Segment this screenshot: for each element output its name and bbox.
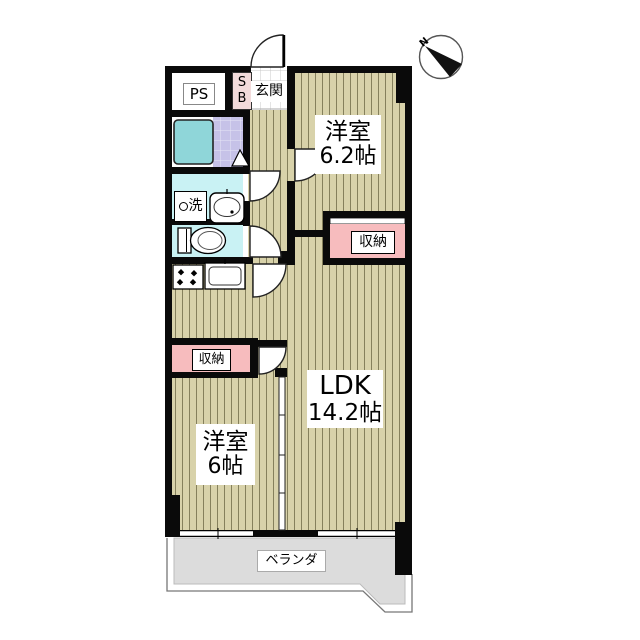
compass-north-icon: N bbox=[418, 36, 463, 79]
washbasin-icon bbox=[210, 189, 244, 223]
kitchen-sink-icon bbox=[205, 259, 245, 289]
floor-plan-drawing: N bbox=[0, 0, 640, 640]
storage-left-label: 収納 bbox=[192, 349, 231, 371]
toilet-icon bbox=[178, 228, 226, 254]
partition-icon bbox=[279, 377, 285, 530]
stove-icon bbox=[173, 265, 203, 289]
entrance-label: 玄関 bbox=[251, 81, 287, 102]
western-room-2-label: 洋室 6帖 bbox=[196, 424, 255, 485]
pipe-space-label: PS bbox=[183, 83, 215, 105]
washer-circle-icon bbox=[179, 202, 188, 211]
shoe-box-label: S B bbox=[232, 72, 252, 110]
storage-right-label: 収納 bbox=[351, 231, 395, 254]
storage-right-sliding-door bbox=[330, 218, 405, 224]
veranda-label: ベランダ bbox=[257, 550, 326, 572]
western-room-1-label: 洋室 6.2帖 bbox=[315, 115, 381, 174]
washer-label: 洗 bbox=[174, 191, 207, 222]
entrance-door-icon bbox=[251, 35, 284, 67]
bathtub-icon bbox=[174, 120, 213, 164]
floor-plan: N PS S B 玄関 洗 洋室 6.2帖 収納 LDK 14.2帖 収納 洋室… bbox=[0, 0, 640, 640]
ldk-label: LDK 14.2帖 bbox=[307, 370, 383, 428]
